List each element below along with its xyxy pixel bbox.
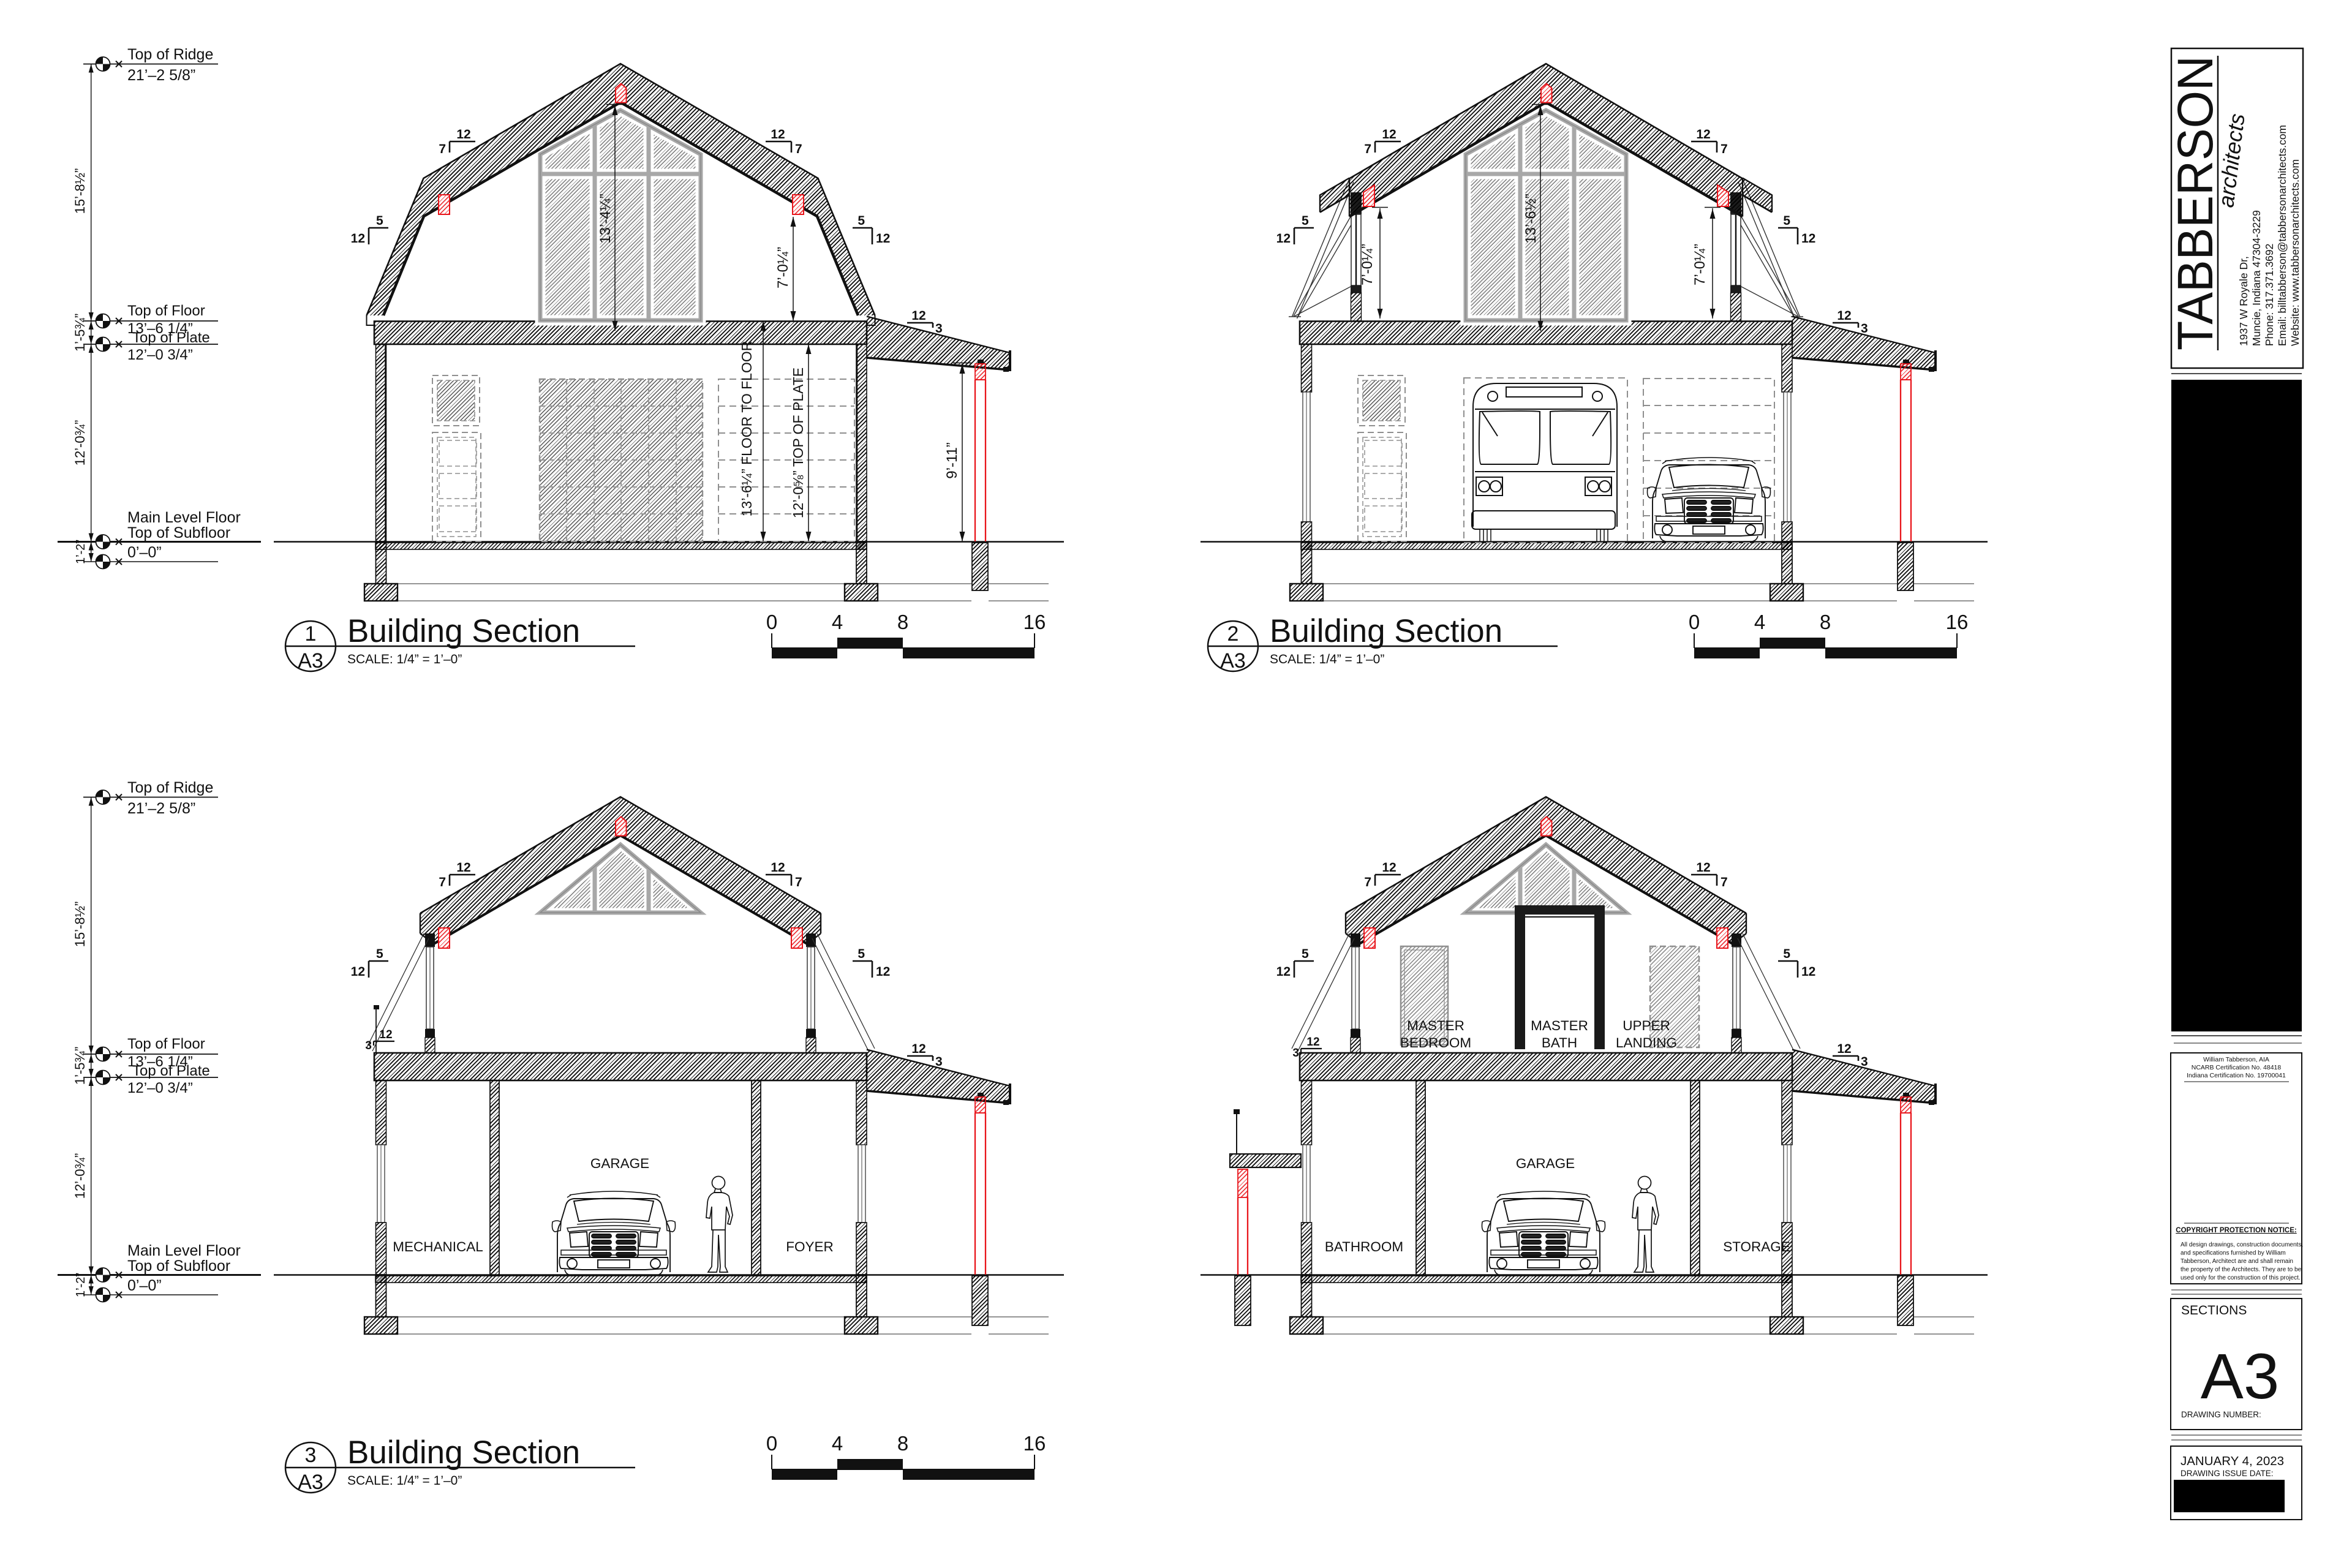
svg-text:LANDING: LANDING <box>1616 1035 1677 1050</box>
svg-text:12’-0¾”: 12’-0¾” <box>72 420 88 466</box>
svg-text:12: 12 <box>351 232 365 246</box>
svg-text:5: 5 <box>858 947 865 961</box>
svg-text:SCALE: 1/4” = 1’–0”: SCALE: 1/4” = 1’–0” <box>347 652 462 666</box>
svg-text:All design drawings, construct: All design drawings, construction docume… <box>2180 1242 2303 1248</box>
svg-text:12: 12 <box>379 1028 392 1041</box>
svg-text:12: 12 <box>1306 1036 1319 1049</box>
svg-text:DRAWING ISSUE DATE:: DRAWING ISSUE DATE: <box>2180 1469 2274 1478</box>
svg-text:A3: A3 <box>298 649 323 673</box>
svg-text:5: 5 <box>1783 214 1790 228</box>
svg-text:Building Section: Building Section <box>347 1434 580 1471</box>
svg-text:12: 12 <box>1696 127 1710 141</box>
svg-text:Website: www.tabbersonarchitec: Website: www.tabbersonarchitects.com <box>2289 159 2301 346</box>
svg-text:13’-4¼”: 13’-4¼” <box>597 194 614 243</box>
svg-text:12’–0 3/4”: 12’–0 3/4” <box>127 347 193 363</box>
svg-text:0’–0”: 0’–0” <box>127 544 162 561</box>
svg-text:and specifications furnish: and specifications furnished by William <box>2180 1250 2286 1257</box>
svg-text:7’-0¼”: 7’-0¼” <box>775 247 791 288</box>
svg-text:9’-11”: 9’-11” <box>944 442 960 479</box>
svg-text:SCALE: 1/4” = 1’–0”: SCALE: 1/4” = 1’–0” <box>1270 652 1384 666</box>
svg-text:13’-6½”: 13’-6½” <box>1523 194 1539 243</box>
svg-text:7’-0¼”: 7’-0¼” <box>1692 244 1708 285</box>
svg-text:Indiana Certification No. 1970: Indiana Certification No. 19700041 <box>2187 1072 2286 1079</box>
svg-text:the property of the Architects: the property of the Architects. They are… <box>2180 1267 2302 1273</box>
svg-text:12: 12 <box>456 127 470 141</box>
svg-text:7’-0¼”: 7’-0¼” <box>1359 244 1376 285</box>
svg-text:A3: A3 <box>2201 1341 2279 1412</box>
svg-text:7: 7 <box>795 142 802 156</box>
svg-text:8: 8 <box>897 611 908 633</box>
svg-text:12: 12 <box>1837 309 1851 323</box>
svg-text:Building Section: Building Section <box>1270 613 1502 649</box>
svg-text:1937 W Royale Dr,: 1937 W Royale Dr, <box>2237 256 2250 346</box>
svg-text:4: 4 <box>832 611 843 633</box>
svg-text:Phone: 317.371.3692: Phone: 317.371.3692 <box>2263 244 2275 346</box>
svg-text:12: 12 <box>1837 1042 1851 1056</box>
svg-text:Email: billtabberson@tabberson: Email: billtabberson@tabbersonarchitects… <box>2276 125 2288 346</box>
svg-text:12: 12 <box>876 965 890 979</box>
svg-text:STORAGE: STORAGE <box>1723 1239 1790 1254</box>
svg-text:3: 3 <box>935 1055 943 1069</box>
svg-text:13’-6¼” FLOOR TO FLOOR: 13’-6¼” FLOOR TO FLOOR <box>739 341 755 517</box>
svg-text:William Tabberson, AIA: William Tabberson, AIA <box>2203 1056 2269 1063</box>
svg-text:5: 5 <box>376 947 383 961</box>
svg-text:12: 12 <box>911 309 925 323</box>
svg-text:Muncie, Indiana 47304-3229: Muncie, Indiana 47304-3229 <box>2250 210 2263 346</box>
svg-text:Top of Floor: Top of Floor <box>127 303 205 319</box>
svg-text:BEDROOM: BEDROOM <box>1400 1035 1471 1050</box>
svg-text:3: 3 <box>305 1444 317 1467</box>
svg-text:12: 12 <box>911 1042 925 1056</box>
svg-text:7: 7 <box>1364 142 1371 156</box>
svg-text:BATH: BATH <box>1542 1035 1577 1050</box>
svg-text:used only for the construction: used only for the construction of this p… <box>2180 1275 2301 1281</box>
svg-text:1’-5¾”: 1’-5¾” <box>72 314 88 352</box>
svg-text:16: 16 <box>1023 611 1046 633</box>
svg-text:A3: A3 <box>298 1471 323 1494</box>
svg-text:7: 7 <box>439 142 446 156</box>
svg-text:NCARB Certification No. 48418: NCARB Certification No. 48418 <box>2192 1064 2282 1071</box>
svg-text:Top of Subfloor: Top of Subfloor <box>127 524 230 541</box>
svg-text:5: 5 <box>1302 214 1309 228</box>
svg-text:7: 7 <box>1721 142 1728 156</box>
svg-text:12: 12 <box>771 861 785 875</box>
svg-text:12: 12 <box>876 232 890 246</box>
svg-text:COPYRIGHT PROTECTION NOTICE:: COPYRIGHT PROTECTION NOTICE: <box>2176 1227 2296 1234</box>
svg-text:GARAGE: GARAGE <box>590 1156 649 1171</box>
svg-text:A3: A3 <box>1220 649 1246 673</box>
svg-text:SCALE: 1/4” = 1’–0”: SCALE: 1/4” = 1’–0” <box>347 1474 462 1488</box>
svg-text:12: 12 <box>1276 232 1291 246</box>
svg-text:7: 7 <box>795 875 802 889</box>
svg-text:Tabberson, Architect are an: Tabberson, Architect are and shall remai… <box>2180 1258 2293 1265</box>
svg-text:1’-2”: 1’-2” <box>74 540 88 564</box>
svg-text:0: 0 <box>766 611 777 633</box>
svg-text:12: 12 <box>1382 127 1396 141</box>
svg-text:2: 2 <box>1227 622 1239 646</box>
svg-text:Top of Ridge: Top of Ridge <box>127 46 213 63</box>
svg-text:GARAGE: GARAGE <box>1516 1156 1575 1171</box>
svg-text:1: 1 <box>305 622 317 646</box>
svg-text:MASTER: MASTER <box>1407 1018 1464 1033</box>
svg-text:3: 3 <box>1861 1055 1868 1069</box>
svg-text:3: 3 <box>1292 1047 1299 1060</box>
svg-text:12: 12 <box>1801 232 1815 246</box>
svg-text:12: 12 <box>456 861 470 875</box>
svg-text:DRAWING NUMBER:: DRAWING NUMBER: <box>2181 1410 2261 1419</box>
svg-text:3: 3 <box>935 322 943 336</box>
svg-text:7: 7 <box>439 875 446 889</box>
svg-text:JANUARY 4, 2023: JANUARY 4, 2023 <box>2180 1454 2284 1468</box>
svg-text:BATHROOM: BATHROOM <box>1325 1239 1403 1254</box>
svg-text:15’-8½”: 15’-8½” <box>72 168 88 214</box>
svg-text:SECTIONS: SECTIONS <box>2181 1303 2247 1317</box>
svg-text:5: 5 <box>858 214 865 228</box>
svg-text:Main Level Floor: Main Level Floor <box>127 509 241 526</box>
svg-text:12’-0⅝” TOP OF PLATE: 12’-0⅝” TOP OF PLATE <box>790 367 806 518</box>
svg-text:UPPER: UPPER <box>1623 1018 1670 1033</box>
svg-text:MASTER: MASTER <box>1531 1018 1588 1033</box>
svg-text:21’–2 5/8”: 21’–2 5/8” <box>127 67 195 84</box>
svg-text:Building Section: Building Section <box>347 613 580 649</box>
svg-text:3: 3 <box>1861 322 1868 336</box>
svg-text:5: 5 <box>376 214 383 228</box>
svg-text:FOYER: FOYER <box>786 1239 834 1254</box>
svg-text:MECHANICAL: MECHANICAL <box>393 1239 483 1254</box>
svg-text:12: 12 <box>771 127 785 141</box>
svg-text:3: 3 <box>365 1039 372 1052</box>
svg-text:Top of Plate: Top of Plate <box>132 330 210 346</box>
svg-text:12: 12 <box>351 965 365 979</box>
